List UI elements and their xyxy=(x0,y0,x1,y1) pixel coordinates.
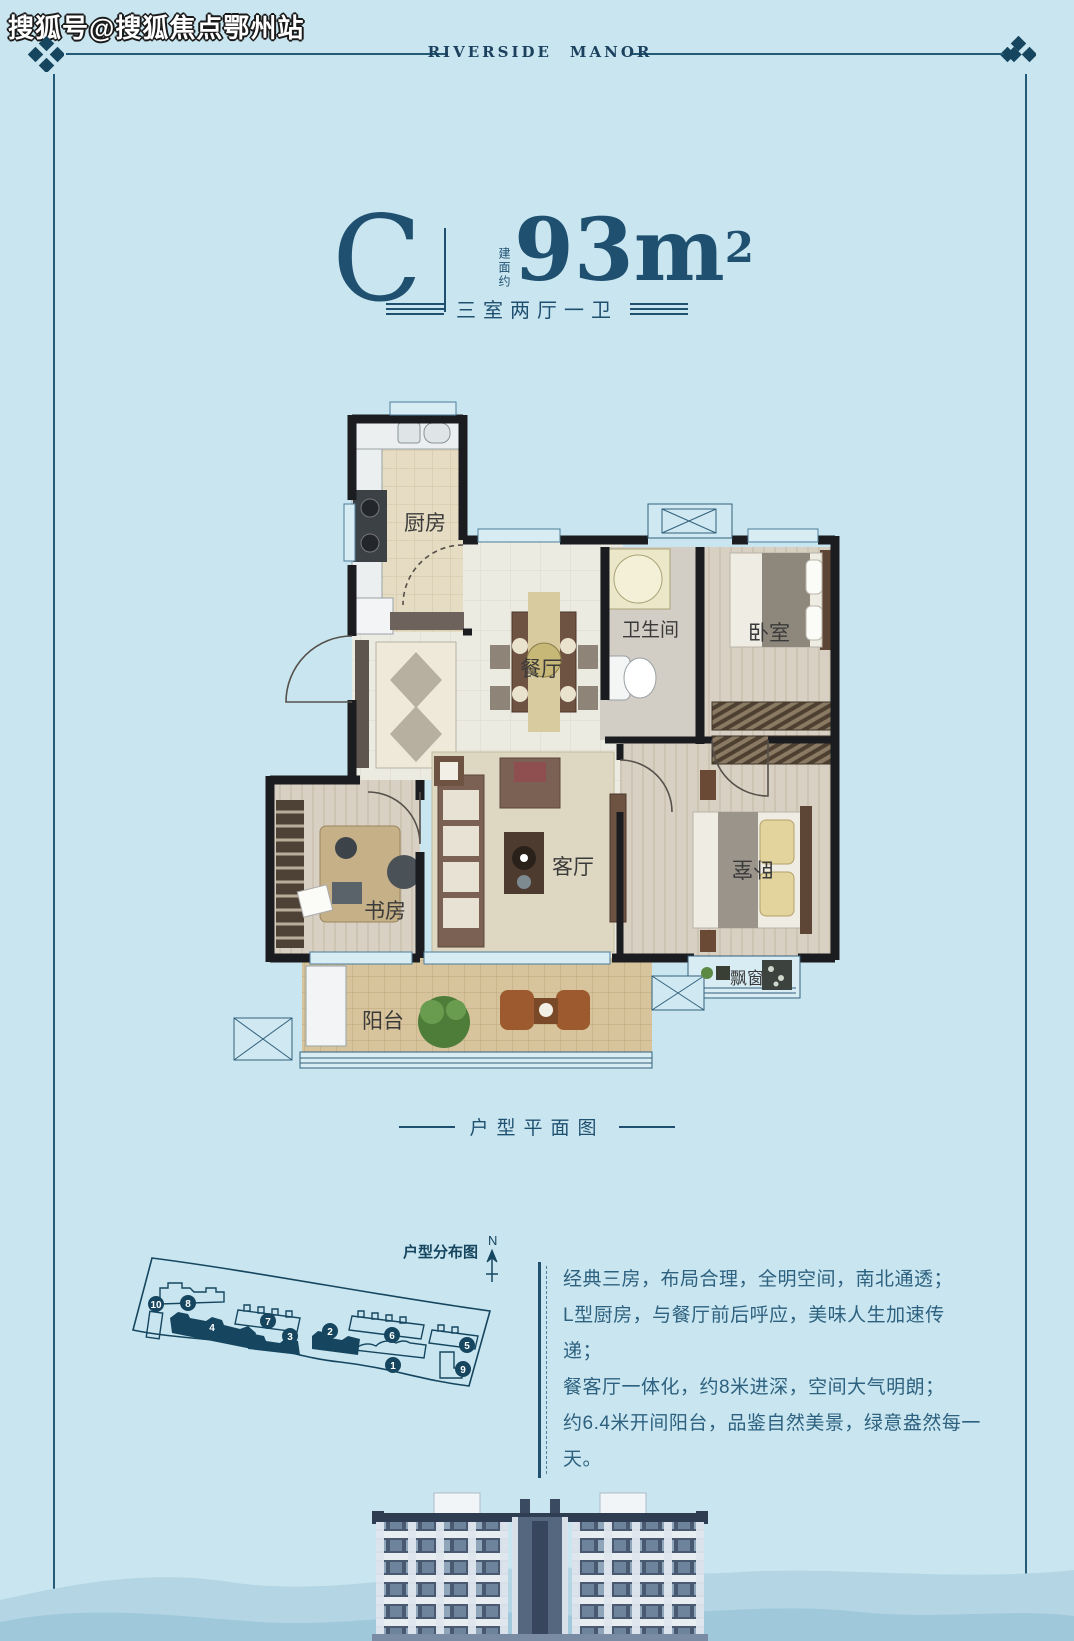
compass-icon: N xyxy=(486,1233,498,1282)
svg-text:N: N xyxy=(488,1233,497,1248)
svg-text:9: 9 xyxy=(460,1365,466,1376)
description-line: 餐客厅一体化，约8米进深，空间大气明朗； xyxy=(563,1370,983,1406)
caption-dash-left xyxy=(399,1126,455,1128)
corner-diamond-right-icon xyxy=(1000,36,1036,72)
svg-text:2: 2 xyxy=(327,1327,333,1338)
caption-dash-right xyxy=(619,1126,675,1128)
corner-diamond-left-icon xyxy=(28,36,64,72)
poster-page: { "watermark": "搜狐号@搜狐焦点鄂州站", "brand": {… xyxy=(0,0,1074,1641)
layout-text: 三室两厅一卫 xyxy=(456,294,618,323)
site-plan: 户型分布图 N 1 2 3 4 5 6 7 8 9 10 xyxy=(100,1225,520,1405)
frame-top-line-left xyxy=(66,53,448,55)
brand-lockup: RIVERSIDE MANOR xyxy=(452,43,628,61)
label-study: 书房 xyxy=(364,900,406,923)
svg-text:8: 8 xyxy=(185,1299,191,1310)
svg-text:4: 4 xyxy=(209,1323,215,1334)
svg-text:1: 1 xyxy=(390,1361,396,1372)
svg-text:3: 3 xyxy=(287,1332,293,1343)
area-unit: m xyxy=(634,200,725,301)
area-superscript: 2 xyxy=(725,223,754,272)
svg-text:6: 6 xyxy=(389,1331,395,1342)
label-living: 客厅 xyxy=(552,856,594,879)
brand-right: MANOR xyxy=(570,43,653,61)
plan-caption: 户型平面图 xyxy=(0,1113,1074,1140)
description-line: 约6.4米开间阳台，品鉴自然美景，绿意盎然每一天。 xyxy=(563,1406,983,1478)
label-bath: 卫生间 xyxy=(622,619,679,641)
area-prefix: 建面约 xyxy=(496,247,513,289)
floorplan: 厨房 餐厅 卫生间 卧室 客厅 书房 卧室 阳台 飘窗 xyxy=(228,378,850,1090)
brand-left: RIVERSIDE xyxy=(428,43,552,61)
area-value: 93m2 xyxy=(514,208,754,294)
building-illustration xyxy=(372,1487,708,1641)
description-line: 经典三房，布局合理，全明空间，南北通透； xyxy=(563,1262,983,1298)
description-line: L型厨房，与餐厅前后呼应，美味人生加速传递； xyxy=(563,1298,983,1370)
living-room-furniture xyxy=(432,752,626,952)
svg-text:7: 7 xyxy=(265,1317,271,1328)
triple-lines-left xyxy=(386,303,444,315)
area-number: 93 xyxy=(514,200,634,301)
label-kitchen: 厨房 xyxy=(404,512,446,535)
label-bedroom1: 卧室 xyxy=(748,622,790,645)
label-bay-window: 飘窗 xyxy=(730,969,764,988)
svg-text:5: 5 xyxy=(464,1341,470,1352)
label-dining: 餐厅 xyxy=(520,658,562,681)
site-plan-title: 户型分布图 xyxy=(403,1243,478,1261)
label-balcony: 阳台 xyxy=(362,1010,404,1033)
label-bedroom2: 卧室 xyxy=(732,857,774,880)
plan-caption-text: 户型平面图 xyxy=(469,1113,604,1140)
layout-row: 三室两厅一卫 xyxy=(0,294,1074,323)
triple-lines-right xyxy=(630,303,688,315)
description-block: 经典三房，布局合理，全明空间，南北通透； L型厨房，与餐厅前后呼应，美味人生加速… xyxy=(538,1262,983,1478)
frame-top-line-right xyxy=(632,53,1004,55)
svg-text:10: 10 xyxy=(150,1300,162,1311)
